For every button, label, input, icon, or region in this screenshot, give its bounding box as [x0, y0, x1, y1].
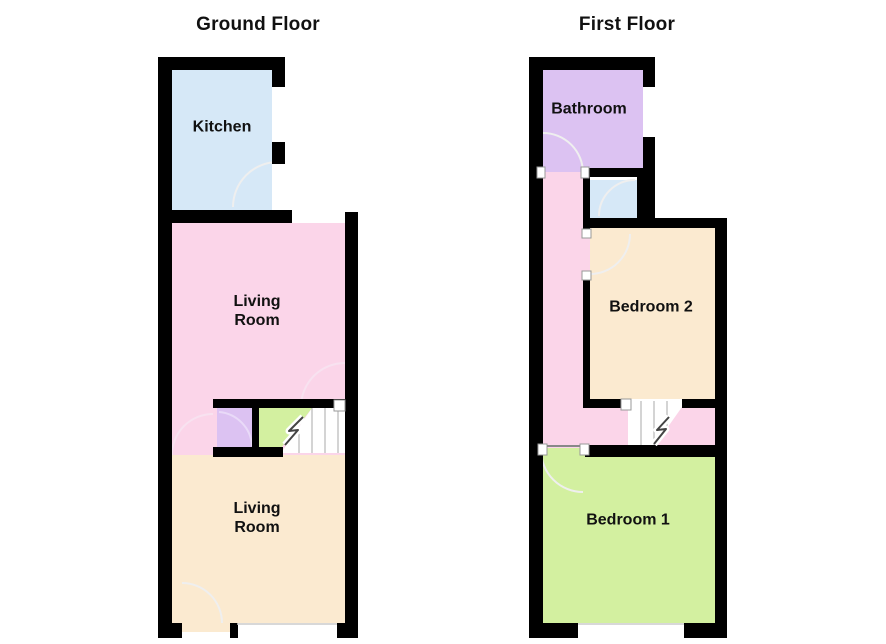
door-jamb [581, 167, 589, 178]
door-jamb [537, 167, 545, 178]
wall [684, 623, 727, 638]
ground-floor-plan [158, 57, 358, 638]
stair-jamb-marker [621, 399, 631, 410]
door-jamb [538, 444, 547, 455]
landing-threshold [543, 172, 583, 177]
bedroom2-door-gap [583, 237, 590, 271]
wall [213, 399, 345, 408]
door-jamb [582, 229, 591, 238]
wall [529, 623, 578, 638]
living-room-lower-label: Living Room [233, 499, 280, 537]
floor-plan-drawing [0, 0, 886, 644]
door-jamb [582, 271, 591, 280]
floor-plan-page: Ground Floor First Floor Kitchen Living … [0, 0, 886, 644]
ground-floor-title: Ground Floor [196, 14, 320, 36]
bedroom1-floor [543, 455, 715, 623]
bathroom-floor [543, 70, 643, 168]
door-jamb [580, 444, 589, 455]
wall [230, 623, 238, 638]
wall [252, 408, 259, 448]
first-floor-plan [529, 57, 727, 638]
bathroom-door-threshold [543, 168, 583, 172]
wall [213, 447, 283, 457]
bedroom2-label: Bedroom 2 [609, 298, 693, 317]
bedroom1-label: Bedroom 1 [586, 511, 670, 530]
wall [529, 57, 543, 638]
wall [682, 399, 727, 408]
living-room-upper-label: Living Room [233, 292, 280, 330]
wall [345, 212, 358, 638]
wall [272, 57, 285, 87]
wall [272, 142, 285, 164]
living-room-lower-floor [172, 455, 345, 623]
wall [337, 623, 358, 638]
wall [158, 57, 285, 70]
wall [637, 177, 655, 218]
wall [643, 57, 655, 87]
bathroom-label: Bathroom [551, 100, 627, 119]
wall [158, 623, 182, 638]
wall [715, 228, 727, 638]
wall [583, 177, 590, 218]
landing-floor [543, 177, 583, 455]
wall [583, 278, 590, 399]
first-floor-title: First Floor [579, 14, 675, 36]
wall [158, 57, 172, 638]
kitchen-floor [172, 70, 272, 210]
wall [583, 218, 727, 228]
wall [585, 445, 727, 457]
front-door-threshold [182, 623, 230, 632]
stair-jamb-marker [334, 400, 345, 411]
wall [529, 57, 655, 70]
store-room-floor [590, 180, 637, 218]
wall [158, 210, 292, 223]
bedroom1-door-gap [543, 448, 585, 457]
wall [583, 168, 643, 177]
kitchen-label: Kitchen [193, 118, 252, 137]
